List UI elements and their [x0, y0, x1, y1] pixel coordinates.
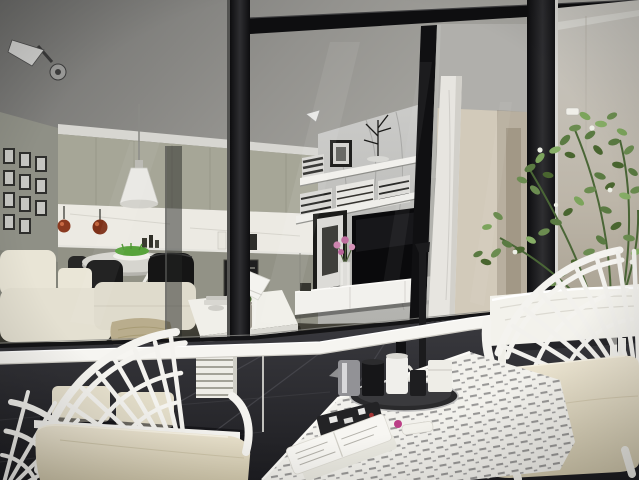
vignette — [0, 0, 639, 480]
scene-canvas — [0, 0, 639, 480]
balcony-apartment-render — [0, 0, 639, 480]
